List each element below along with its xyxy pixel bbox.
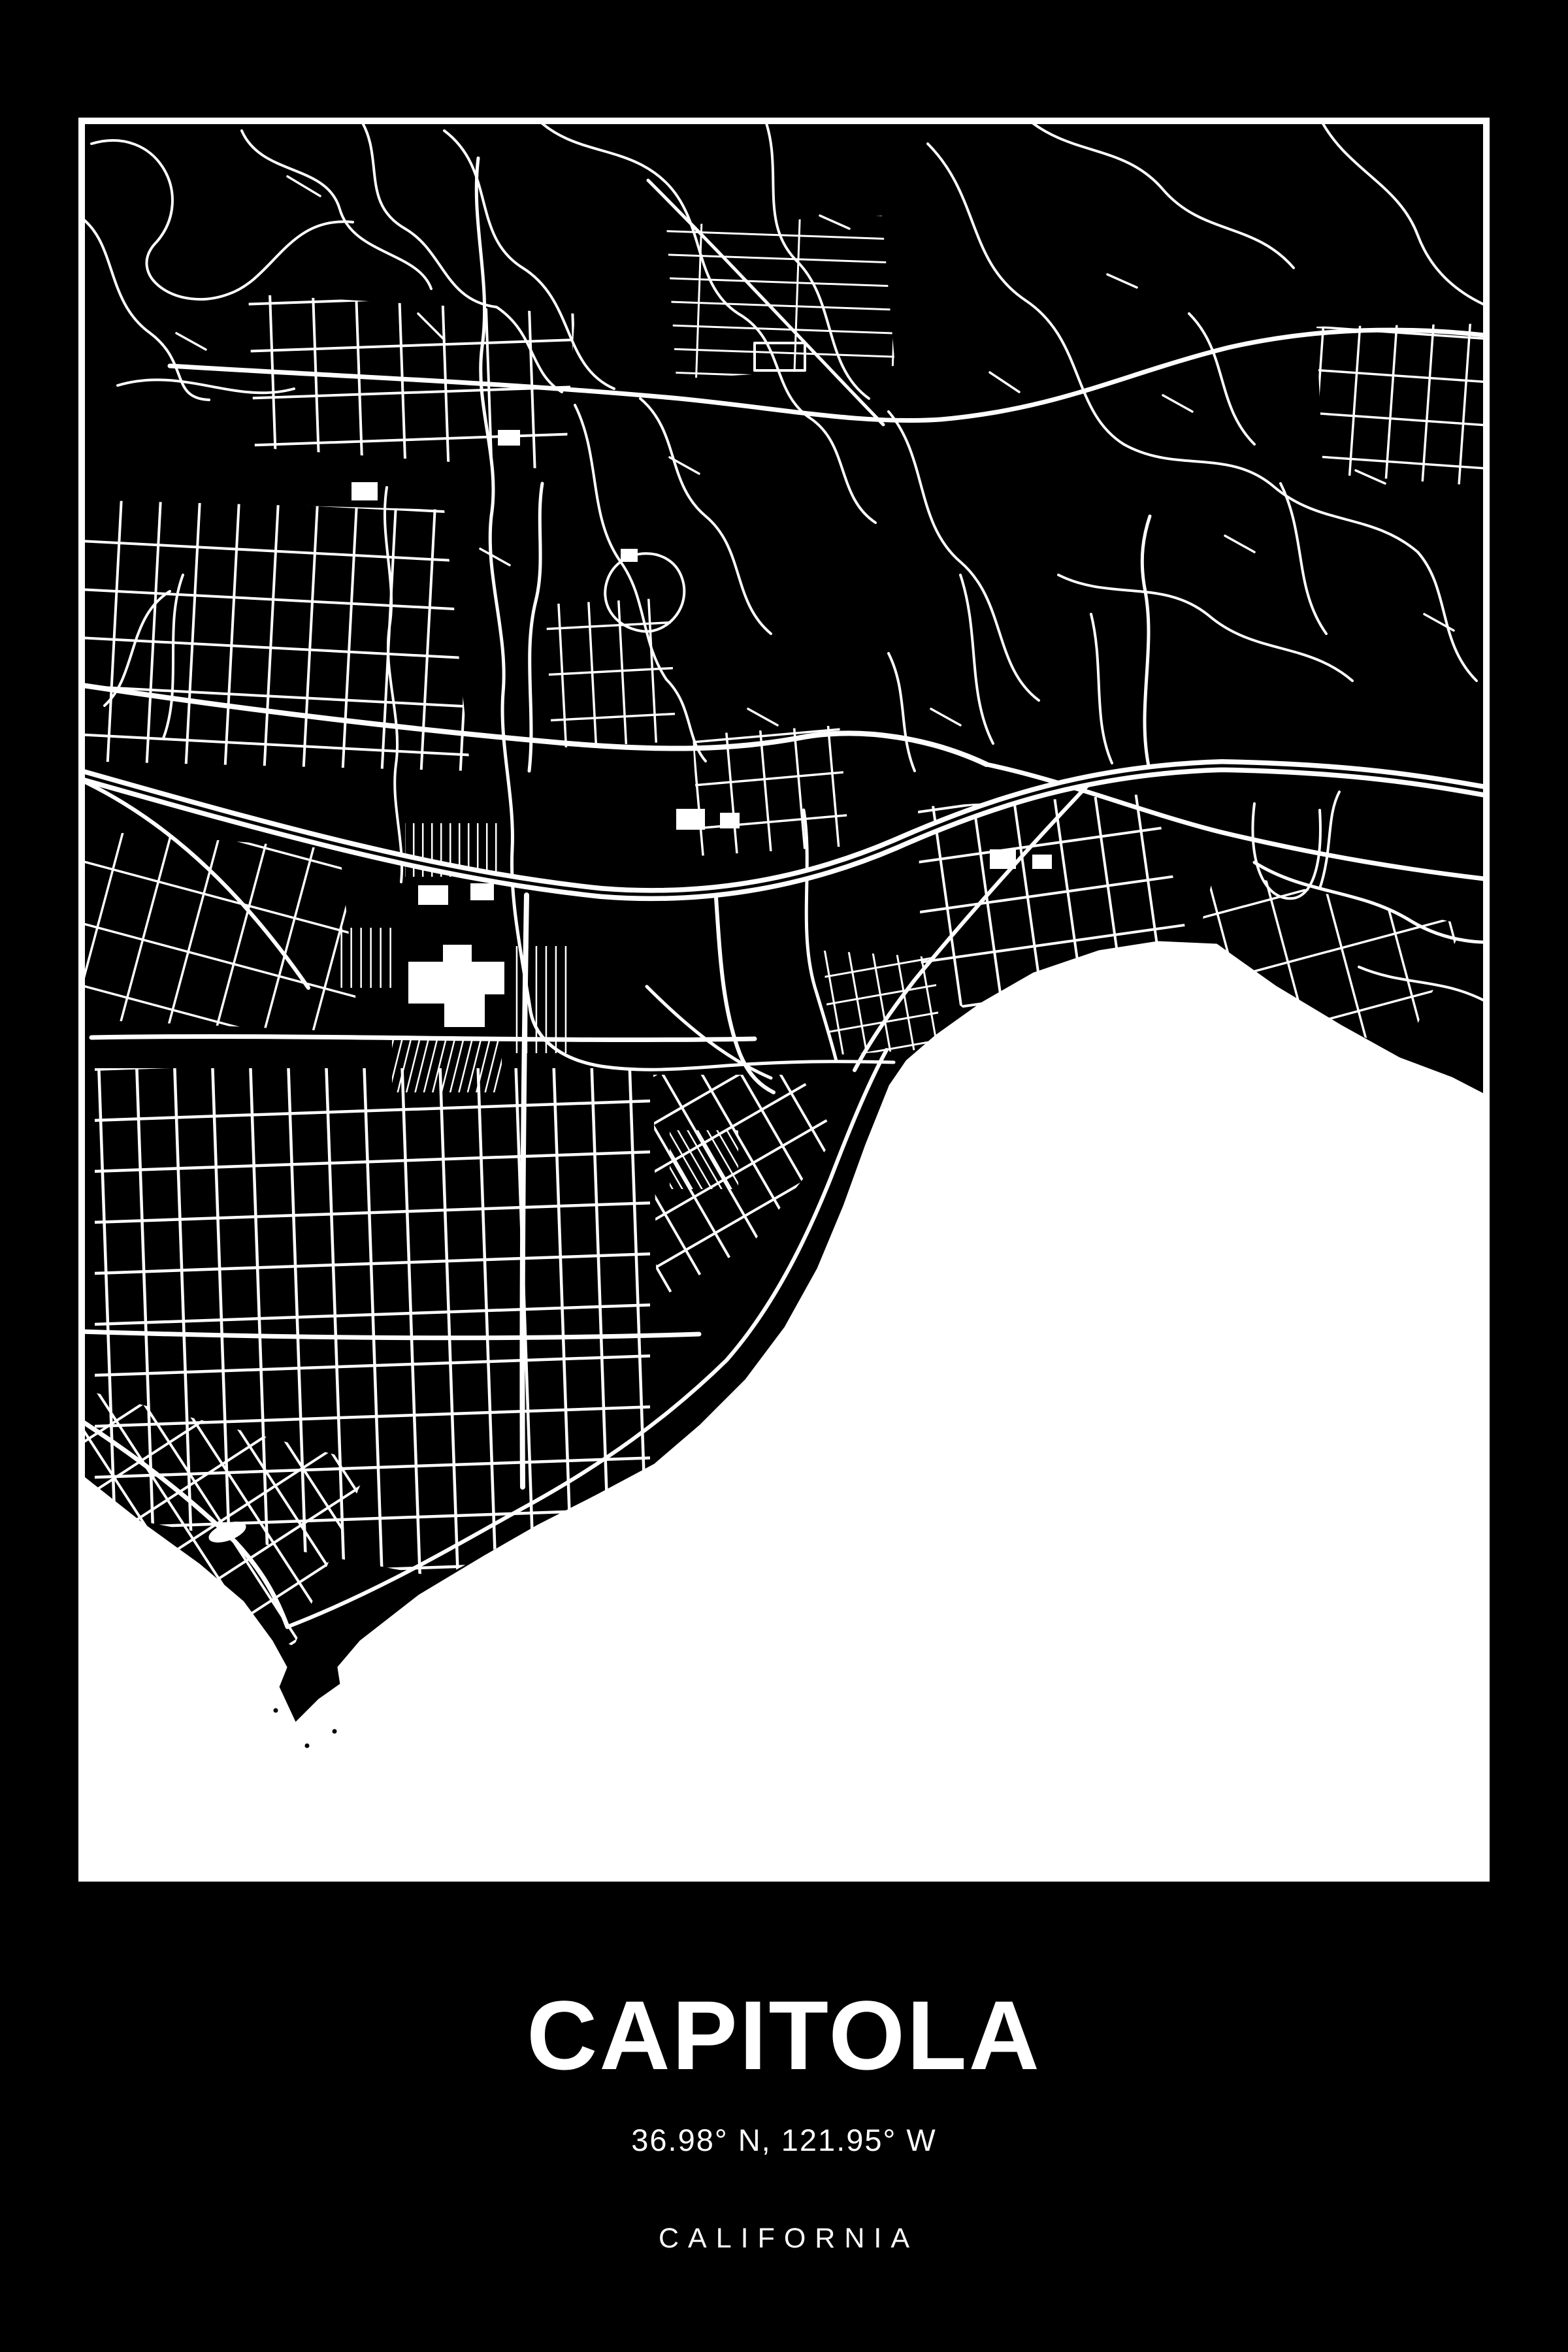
poster-canvas: { "poster": { "title": "CAPITOLA", "coor…: [0, 0, 1568, 2352]
poster-title: CAPITOLA: [0, 1983, 1568, 2087]
poster-region: CALIFORNIA: [0, 2221, 1568, 2255]
city-map: [78, 118, 1490, 1882]
poster-coordinates: 36.98° N, 121.95° W: [0, 2122, 1568, 2159]
map-frame: [78, 118, 1490, 1882]
